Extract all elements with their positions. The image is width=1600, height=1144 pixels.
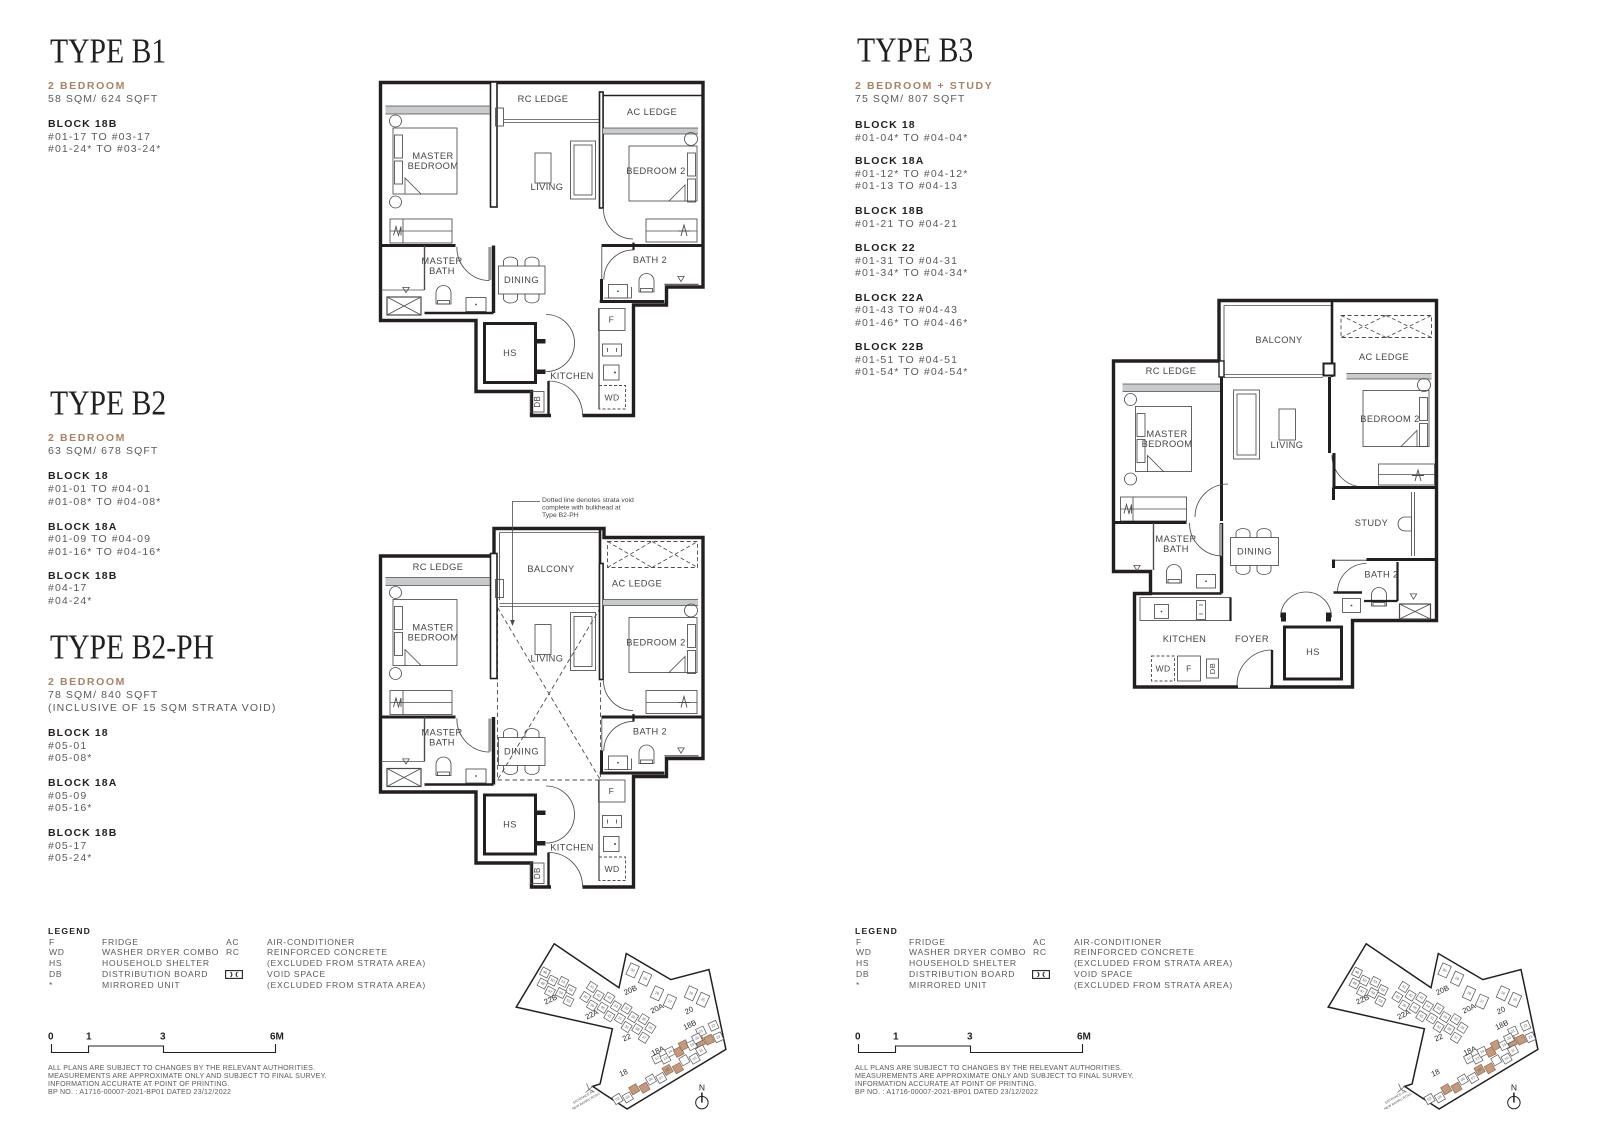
svg-text:DB: DB <box>533 867 542 879</box>
svg-text:MASTER: MASTER <box>421 256 462 266</box>
svg-text:LIVING: LIVING <box>1271 440 1304 450</box>
svg-text:BATH: BATH <box>429 266 455 276</box>
svg-text:BEDROOM 2: BEDROOM 2 <box>1360 414 1419 424</box>
svg-text:KITCHEN: KITCHEN <box>550 843 594 853</box>
svg-text:BEDROOM: BEDROOM <box>1142 439 1193 449</box>
svg-text:BEDROOM 2: BEDROOM 2 <box>626 638 685 648</box>
svg-text:WD: WD <box>604 864 619 874</box>
svg-text:MASTER: MASTER <box>412 623 453 633</box>
svg-text:FOYER: FOYER <box>1235 634 1269 644</box>
svg-text:BALCONY: BALCONY <box>1255 335 1302 345</box>
svg-text:KITCHEN: KITCHEN <box>1163 634 1207 644</box>
svg-text:LIVING: LIVING <box>531 654 564 664</box>
svg-text:WD: WD <box>1155 664 1170 674</box>
svg-text:DINING: DINING <box>1237 547 1272 557</box>
svg-text:DINING: DINING <box>504 747 539 757</box>
svg-text:MASTER: MASTER <box>1155 534 1196 544</box>
svg-text:F: F <box>609 315 615 325</box>
svg-text:F: F <box>609 786 615 796</box>
svg-text:AC LEDGE: AC LEDGE <box>627 107 677 117</box>
svg-text:RC LEDGE: RC LEDGE <box>413 562 464 572</box>
svg-text:BATH: BATH <box>429 738 455 748</box>
svg-text:BATH 2: BATH 2 <box>633 727 667 737</box>
svg-text:DB: DB <box>1208 663 1217 674</box>
svg-text:AC LEDGE: AC LEDGE <box>612 579 662 589</box>
svg-text:DB: DB <box>533 396 542 408</box>
svg-text:Type B2-PH: Type B2-PH <box>542 512 579 519</box>
svg-text:BATH 2: BATH 2 <box>1364 570 1398 580</box>
svg-text:N: N <box>699 1083 705 1093</box>
svg-text:DINING: DINING <box>504 275 539 285</box>
svg-text:BEDROOM: BEDROOM <box>408 161 459 171</box>
svg-text:BATH: BATH <box>1163 544 1189 554</box>
svg-text:STUDY: STUDY <box>1355 518 1389 528</box>
svg-text:BEDROOM 2: BEDROOM 2 <box>626 166 685 176</box>
svg-text:HS: HS <box>503 820 517 830</box>
svg-text:HS: HS <box>1306 647 1320 657</box>
svg-text:RC LEDGE: RC LEDGE <box>518 94 569 104</box>
svg-text:RC LEDGE: RC LEDGE <box>1146 366 1197 376</box>
svg-text:Dotted line denotes strata voi: Dotted line denotes strata void <box>542 497 634 504</box>
svg-text:F: F <box>1186 664 1192 674</box>
svg-text:KITCHEN: KITCHEN <box>550 371 594 381</box>
svg-text:BATH 2: BATH 2 <box>633 255 667 265</box>
svg-text:WD: WD <box>604 393 619 403</box>
svg-text:MASTER: MASTER <box>421 728 462 738</box>
svg-text:AC LEDGE: AC LEDGE <box>1359 352 1409 362</box>
svg-text:BALCONY: BALCONY <box>527 564 574 574</box>
svg-text:BEDROOM: BEDROOM <box>408 633 459 643</box>
svg-text:HS: HS <box>503 348 517 358</box>
svg-text:LIVING: LIVING <box>531 182 564 192</box>
svg-text:MASTER: MASTER <box>412 151 453 161</box>
svg-text:MASTER: MASTER <box>1146 429 1187 439</box>
svg-text:complete with bulkhead at: complete with bulkhead at <box>542 505 621 512</box>
